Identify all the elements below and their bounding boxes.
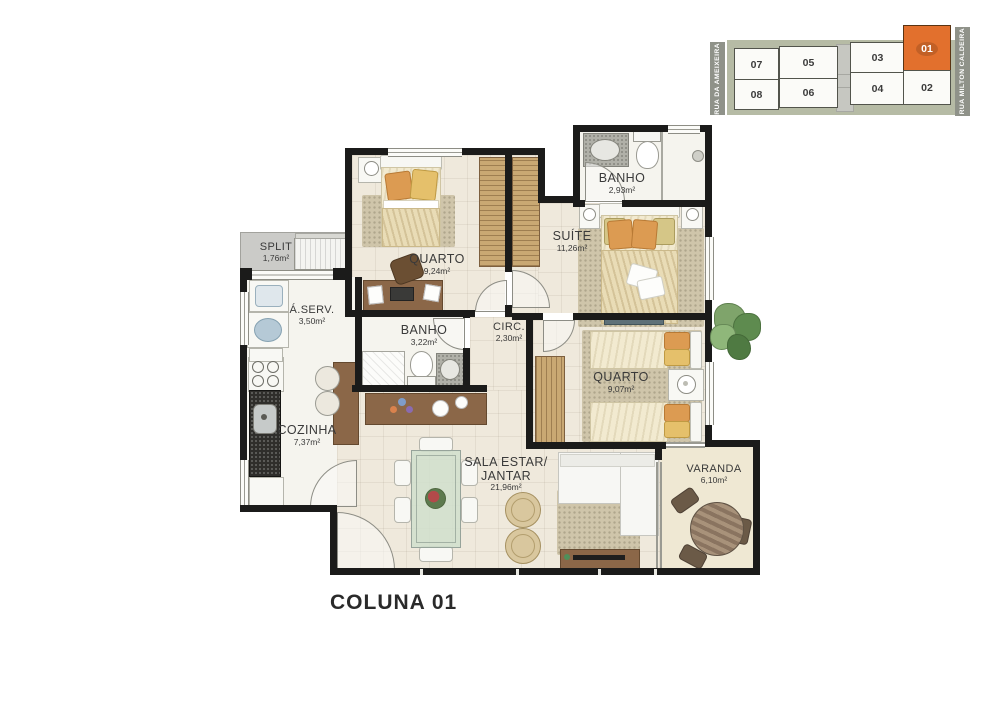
room-area: 9,24m²	[409, 267, 464, 276]
room-name: QUARTO	[593, 371, 648, 385]
single-bed	[590, 402, 668, 442]
unit-cell-04: 04	[850, 72, 905, 105]
room-label-suite: SUÍTE 11,26m²	[553, 230, 592, 253]
wall	[463, 310, 470, 318]
ac-condenser-unit	[294, 238, 348, 270]
wall	[463, 348, 470, 392]
room-area: 11,26m²	[553, 244, 592, 253]
room-area: 9,07m²	[593, 385, 648, 394]
wall	[622, 200, 712, 207]
pillow	[664, 349, 690, 366]
room-name: SUÍTE	[553, 230, 592, 244]
unit-cell-02: 02	[903, 70, 951, 105]
street-label-left: RUA DA AMEIXEIRA	[710, 42, 725, 115]
unit-cell-07: 07	[734, 48, 779, 81]
burner-icon	[252, 375, 264, 387]
kitchen-cabinet	[249, 477, 284, 507]
unit-cell-08: 08	[734, 79, 779, 110]
wall	[240, 345, 247, 460]
wall	[655, 442, 662, 460]
sink-icon	[590, 139, 620, 161]
wall	[505, 305, 512, 317]
unit-number: 04	[872, 83, 884, 95]
unit-number: 01	[916, 42, 938, 56]
lamp-icon	[364, 161, 379, 176]
room-name-line1: SALA ESTAR/	[464, 456, 547, 470]
wall	[345, 310, 475, 317]
window	[705, 237, 714, 300]
room-label-banho-suite: BANHO 2,93m²	[599, 172, 645, 195]
tv-icon	[573, 555, 625, 560]
lamp-icon	[686, 208, 699, 221]
shower-partition	[661, 129, 663, 203]
sideboard	[365, 393, 487, 425]
washer-door	[255, 285, 283, 307]
ac-ledge-trim	[295, 233, 347, 239]
floor-plan-canvas: RUA DA AMEIXEIRA RUA MILTON CALDEIRA 07 …	[0, 0, 1000, 707]
wardrobe	[512, 157, 540, 267]
sliding-door	[660, 462, 662, 568]
armchair-inner	[511, 498, 535, 522]
unit-number: 07	[751, 59, 763, 71]
room-area: 2,30m²	[493, 334, 525, 343]
bar-stool	[315, 366, 340, 391]
wall	[573, 125, 580, 203]
centerpiece-flowers	[425, 488, 446, 509]
room-label-circulacao: CIRC. 2,30m²	[493, 322, 525, 343]
room-name-line2: JANTAR	[464, 470, 547, 484]
decor-dot-icon	[564, 554, 570, 560]
room-label-sala: SALA ESTAR/ JANTAR 21,96m²	[464, 456, 547, 492]
room-label-banho-social: BANHO 3,22m²	[401, 324, 447, 347]
wall-notch	[420, 569, 423, 575]
bed-headboard	[690, 402, 702, 442]
wall	[330, 568, 760, 575]
round-table	[690, 502, 744, 556]
street-label-right: RUA MILTON CALDEIRA	[955, 27, 970, 116]
room-label-quarto2: QUARTO 9,07m²	[593, 371, 648, 394]
decor-bowl-icon	[432, 400, 449, 417]
wall	[705, 440, 760, 447]
wall	[505, 148, 512, 272]
toilet-icon	[410, 351, 433, 378]
unit-cell-01-highlighted: 01	[903, 25, 951, 72]
wall-notch	[516, 569, 519, 575]
room-area: 3,50m²	[290, 317, 335, 326]
unit-number: 08	[751, 89, 763, 101]
papers-icon	[423, 284, 442, 303]
plan-title: COLUNA 01	[330, 591, 457, 615]
window	[252, 270, 333, 280]
room-name: BANHO	[599, 172, 645, 186]
wardrobe	[535, 356, 565, 446]
wall	[240, 505, 337, 512]
sliding-door	[656, 462, 658, 568]
shower-drain-icon	[692, 150, 704, 162]
lamp-icon	[583, 208, 596, 221]
window	[240, 460, 249, 505]
burner-icon	[267, 361, 279, 373]
wall	[526, 442, 666, 449]
unit-number: 03	[872, 52, 884, 64]
laptop-icon	[390, 287, 414, 301]
wall	[705, 125, 712, 237]
room-area: 6,10m²	[686, 476, 741, 485]
shower-box	[362, 351, 405, 386]
sliding-door	[666, 446, 705, 448]
wall	[240, 505, 247, 512]
single-bed	[590, 331, 668, 369]
papers-icon	[367, 285, 384, 304]
wall	[330, 505, 337, 575]
room-area: 1,76m²	[260, 254, 293, 263]
faucet-icon	[261, 414, 267, 420]
lamp-icon	[683, 381, 688, 386]
toilet-icon	[636, 141, 659, 169]
wardrobe	[479, 157, 507, 267]
room-label-quarto1: QUARTO 9,24m²	[409, 253, 464, 276]
unit-cell-03: 03	[850, 42, 905, 74]
pillow	[631, 219, 658, 250]
burner-icon	[267, 375, 279, 387]
sliding-door	[666, 442, 705, 444]
unit-number: 05	[803, 57, 815, 69]
decor-bowl-icon	[455, 396, 468, 409]
wall	[753, 440, 760, 575]
wall-notch	[598, 569, 601, 575]
window	[668, 125, 700, 134]
room-name: BANHO	[401, 324, 447, 338]
window	[240, 292, 249, 345]
street-left-text: RUA DA AMEIXEIRA	[714, 43, 721, 115]
pillow	[664, 404, 690, 422]
unit-cell-05: 05	[779, 46, 838, 80]
armchair-inner	[511, 534, 535, 558]
dining-chair	[394, 460, 411, 486]
sink-icon	[440, 359, 460, 380]
bed-blanket	[382, 208, 440, 247]
room-area: 7,37m²	[277, 438, 336, 447]
tank-basin	[254, 318, 282, 342]
dining-chair	[394, 497, 411, 523]
bar-stool	[315, 391, 340, 416]
room-area: 3,22m²	[401, 338, 447, 347]
laundry-shelf	[249, 348, 283, 362]
pillow	[664, 332, 690, 350]
unit-number: 06	[803, 87, 815, 99]
room-label-split: SPLIT 1,76m²	[260, 242, 293, 263]
unit-number: 02	[921, 82, 933, 94]
room-area: 2,93m²	[599, 186, 645, 195]
window	[705, 362, 714, 425]
burner-icon	[252, 361, 264, 373]
unit-cell-06: 06	[779, 78, 838, 108]
decor-dot-icon	[398, 398, 406, 406]
room-label-cozinha: COZINHA 7,37m²	[277, 424, 336, 447]
bed-headboard	[690, 331, 702, 369]
pillow	[664, 421, 690, 438]
decor-dot-icon	[406, 406, 413, 413]
room-area: 21,96m²	[464, 483, 547, 492]
pillow	[410, 169, 439, 202]
wall	[526, 313, 533, 449]
plant-icon	[727, 334, 751, 360]
sofa-back	[560, 454, 655, 467]
wall	[705, 425, 712, 447]
window	[388, 148, 462, 157]
dining-chair	[419, 546, 453, 562]
room-name: QUARTO	[409, 253, 464, 267]
decor-dot-icon	[390, 406, 397, 413]
wall	[345, 148, 352, 317]
room-label-area-servico: Á.SERV. 3,50m²	[290, 305, 335, 326]
wall-notch	[654, 569, 657, 575]
room-name: COZINHA	[277, 424, 336, 438]
street-right-text: RUA MILTON CALDEIRA	[959, 28, 966, 114]
wall	[538, 148, 545, 203]
room-label-varanda: VARANDA 6,10m²	[686, 464, 741, 485]
wall	[240, 268, 247, 292]
dining-chair	[461, 497, 478, 523]
wall	[355, 277, 362, 392]
wall	[573, 313, 712, 320]
